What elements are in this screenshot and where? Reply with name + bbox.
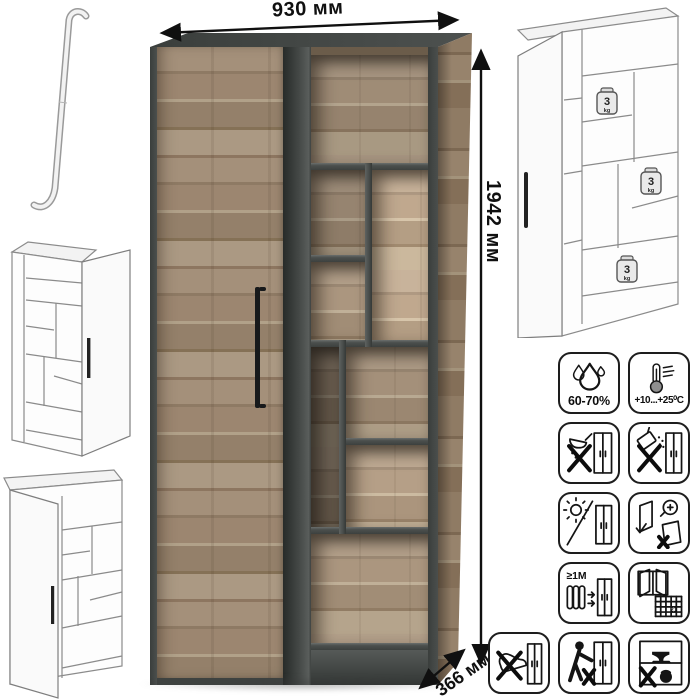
width-arrow	[163, 20, 456, 33]
room-ventilation-icon: 21	[628, 562, 690, 624]
humidity-label: 60-70%	[568, 395, 610, 408]
door-adjust-art	[633, 497, 685, 549]
door-adjustment-check-icon	[628, 492, 690, 554]
calendar-grid	[656, 596, 682, 616]
distance-label: ≥1М	[566, 571, 586, 582]
water-drops-icon	[567, 359, 611, 395]
no-drag-art	[563, 637, 615, 689]
no-shoe-art	[493, 637, 545, 689]
no-dragging-icon	[558, 632, 620, 694]
calendar-day: 21	[670, 608, 677, 614]
heat-source-distance-icon: ≥1М	[558, 562, 620, 624]
thermometer-icon	[637, 360, 681, 396]
temperature-range-icon: +10...+25⁰С	[628, 352, 690, 414]
dimension-width-label: 930 мм	[272, 0, 344, 22]
humidity-icon: 60-70%	[558, 352, 620, 414]
no-liquids-art	[563, 427, 615, 479]
product-sheet: 3 kg 3 kg 3 kg	[0, 0, 694, 700]
no-overload-art	[633, 637, 685, 689]
no-shelf-overload-icon	[628, 632, 690, 694]
no-abrasives-art	[633, 427, 685, 479]
no-abrasive-cleaners-icon	[628, 422, 690, 484]
sun-slash-art	[563, 497, 615, 549]
anvil-shape	[651, 652, 672, 664]
window-calendar-art: 21	[633, 567, 685, 619]
dimension-height-label: 1942 мм	[482, 180, 504, 263]
temperature-label: +10...+25⁰С	[634, 396, 683, 406]
heater-distance-art: ≥1М	[563, 567, 615, 619]
no-direct-sunlight-icon	[558, 492, 620, 554]
no-foot-pushing-icon	[488, 632, 550, 694]
no-spilled-liquids-icon	[558, 422, 620, 484]
dimension-depth-label: 366 мм	[432, 649, 494, 700]
